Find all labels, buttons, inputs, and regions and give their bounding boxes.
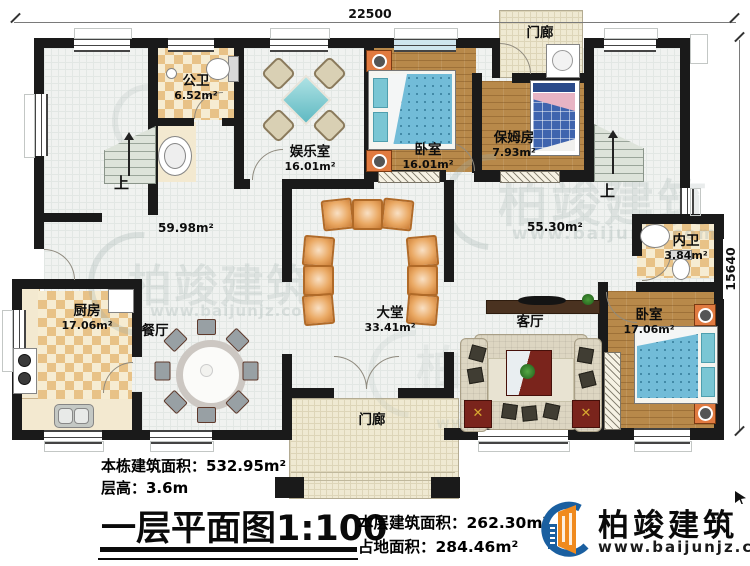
hall-right-area: 55.30m² [527, 220, 583, 234]
dining-chair [155, 362, 171, 381]
stair-arrow [128, 136, 130, 176]
side-table: ✕ [464, 400, 492, 428]
wall [282, 180, 292, 282]
bed-double [368, 70, 456, 150]
window [604, 38, 656, 52]
lobby-seat [320, 197, 354, 231]
wall [132, 392, 142, 430]
window-sill [24, 94, 35, 158]
dining-chair [197, 319, 216, 335]
room-area: 17.06m² [52, 320, 122, 333]
floor-height-text: 层高：3.6m [101, 477, 188, 498]
dimension-right-value: 15640 [723, 239, 739, 299]
brand-url: www.baijunjz.com [598, 538, 750, 556]
room-name: 厨房 [52, 304, 122, 320]
wardrobe-hatch [604, 352, 621, 430]
room-label-entertainment: 娱乐室 16.01m² [272, 145, 348, 173]
wall [444, 180, 454, 282]
room-label-public-bath: 公卫 6.52m² [162, 74, 230, 102]
cushion [501, 403, 518, 420]
room-area: 33.41m² [358, 322, 422, 335]
wall [632, 214, 724, 224]
floor-area-text: 本层建筑面积：262.30m² [358, 511, 549, 533]
dining-table-center [200, 364, 213, 377]
lobby-seat [407, 265, 438, 296]
lobby-seat [380, 197, 414, 231]
dimension-line-right [739, 40, 740, 432]
nightstand-lamp-icon [698, 406, 713, 421]
wall [282, 354, 292, 440]
porch-pillar [431, 477, 460, 498]
building-area-text: 本栋建筑面积：532.95m² [101, 455, 286, 476]
room-label-inner-bath: 内卫 3.84m² [656, 234, 716, 262]
room-name: 门廊 [508, 26, 572, 42]
window [394, 38, 456, 52]
room-name: 客厅 [506, 315, 554, 331]
room-name: 餐厅 [132, 324, 178, 340]
room-label-lobby: 大堂 33.41m² [358, 306, 422, 334]
wall [282, 179, 374, 189]
window [270, 38, 328, 52]
wall [234, 179, 250, 189]
window-sill [44, 441, 104, 452]
room-label-dining: 餐厅 [132, 324, 178, 340]
brand-logo-icon [536, 496, 592, 560]
room-area: 6.52m² [162, 90, 230, 103]
room-name: 娱乐室 [272, 145, 348, 161]
room-area: 17.06m² [614, 324, 684, 337]
cushion [577, 347, 594, 364]
plan-title-name: 一层平面图 [101, 509, 276, 549]
room-area: 16.01m² [394, 159, 462, 172]
side-table: ✕ [572, 400, 600, 428]
lobby-seat [406, 235, 440, 269]
room-name: 公卫 [162, 74, 230, 90]
plan-title: 一层平面图1:100 [101, 500, 387, 551]
wash-basin-inner [164, 143, 186, 169]
floor-plan-page: 柏竣建筑 www.baijunjz.com 柏竣建筑 www.baijunjz.… [0, 0, 750, 566]
room-name: 门廊 [340, 413, 404, 429]
room-name: 卧室 [614, 308, 684, 324]
nightstand-lamp-icon [698, 308, 713, 323]
porch-step-line [291, 472, 455, 473]
plant-icon [582, 294, 594, 305]
bed-double [634, 326, 718, 404]
title-underline-thick [100, 547, 357, 552]
dimension-top-value: 22500 [338, 6, 402, 22]
interior-window-hatch [378, 171, 440, 183]
up-label: 上 [114, 172, 129, 193]
window-sill [270, 28, 330, 39]
pillow [701, 333, 715, 363]
window-sill [394, 28, 458, 39]
window [74, 38, 130, 52]
footprint-area-text: 占地面积：284.46m² [358, 535, 518, 557]
cushion [467, 367, 484, 384]
cushion [521, 405, 537, 421]
room-name: 内卫 [656, 234, 716, 250]
stair-arrow [612, 134, 614, 174]
porch-pillar [275, 477, 304, 498]
room-area: 16.01m² [272, 161, 348, 174]
pillow [701, 367, 715, 397]
window-sill [604, 28, 658, 39]
room-name: 卧室 [394, 143, 462, 159]
wall [222, 118, 238, 126]
window-sill [634, 441, 692, 452]
wall [12, 279, 142, 289]
room-label-porch-top: 门廊 [508, 26, 572, 42]
pillow [373, 112, 388, 142]
nightstand-lamp-icon [372, 154, 387, 169]
dimension-line-top [14, 22, 736, 23]
wall [292, 388, 334, 398]
wall [492, 38, 500, 78]
room-area: 3.84m² [656, 250, 716, 263]
room-label-living: 客厅 [506, 315, 554, 331]
window-sill [150, 441, 214, 452]
washing-machine-drum [552, 50, 573, 71]
tv [518, 296, 566, 305]
wall [152, 118, 194, 126]
lobby-seat [352, 199, 383, 230]
wall [636, 282, 724, 292]
wall [444, 352, 454, 398]
room-name: 大堂 [358, 306, 422, 322]
room-label-kitchen: 厨房 17.06m² [52, 304, 122, 332]
dining-chair [197, 407, 216, 423]
interior-window-hatch [500, 171, 560, 183]
wall [42, 213, 102, 222]
plant-icon [520, 364, 535, 379]
window-sill [478, 441, 570, 452]
stove-burner [18, 354, 31, 367]
lobby-seat [302, 293, 336, 327]
room-label-bedroom1: 卧室 16.01m² [394, 143, 462, 171]
dining-chair [243, 362, 259, 381]
wall [680, 38, 690, 188]
kitchen-sink-bowl [74, 408, 89, 424]
corner-frame [690, 34, 708, 64]
window [168, 38, 214, 52]
kitchen-sink-bowl [58, 408, 73, 424]
hall-left-area: 59.98m² [158, 221, 214, 235]
window-sill [74, 28, 132, 39]
pillow [373, 78, 388, 108]
room-label-bedroom2: 卧室 17.06m² [614, 308, 684, 336]
lobby-seat [302, 235, 336, 269]
nightstand-lamp-icon [372, 54, 387, 69]
window-sill [2, 310, 13, 372]
lobby-seat [303, 265, 334, 296]
room-name: 保姆房 [478, 131, 550, 147]
room-label-nanny: 保姆房 7.93m² [478, 131, 550, 159]
window-sill [690, 188, 701, 216]
room-label-porch-bottom: 门廊 [340, 413, 404, 429]
wall [584, 38, 594, 178]
wall [148, 38, 158, 215]
stair-arrow-head [608, 130, 618, 138]
wall [398, 388, 444, 398]
stove-burner [18, 372, 31, 385]
window [34, 94, 48, 156]
title-underline-thin [98, 558, 358, 560]
room-area: 7.93m² [478, 147, 550, 160]
cushion [543, 403, 561, 421]
up-label: 上 [600, 180, 615, 201]
stair-arrow-head [124, 132, 134, 140]
pillow [533, 83, 575, 92]
